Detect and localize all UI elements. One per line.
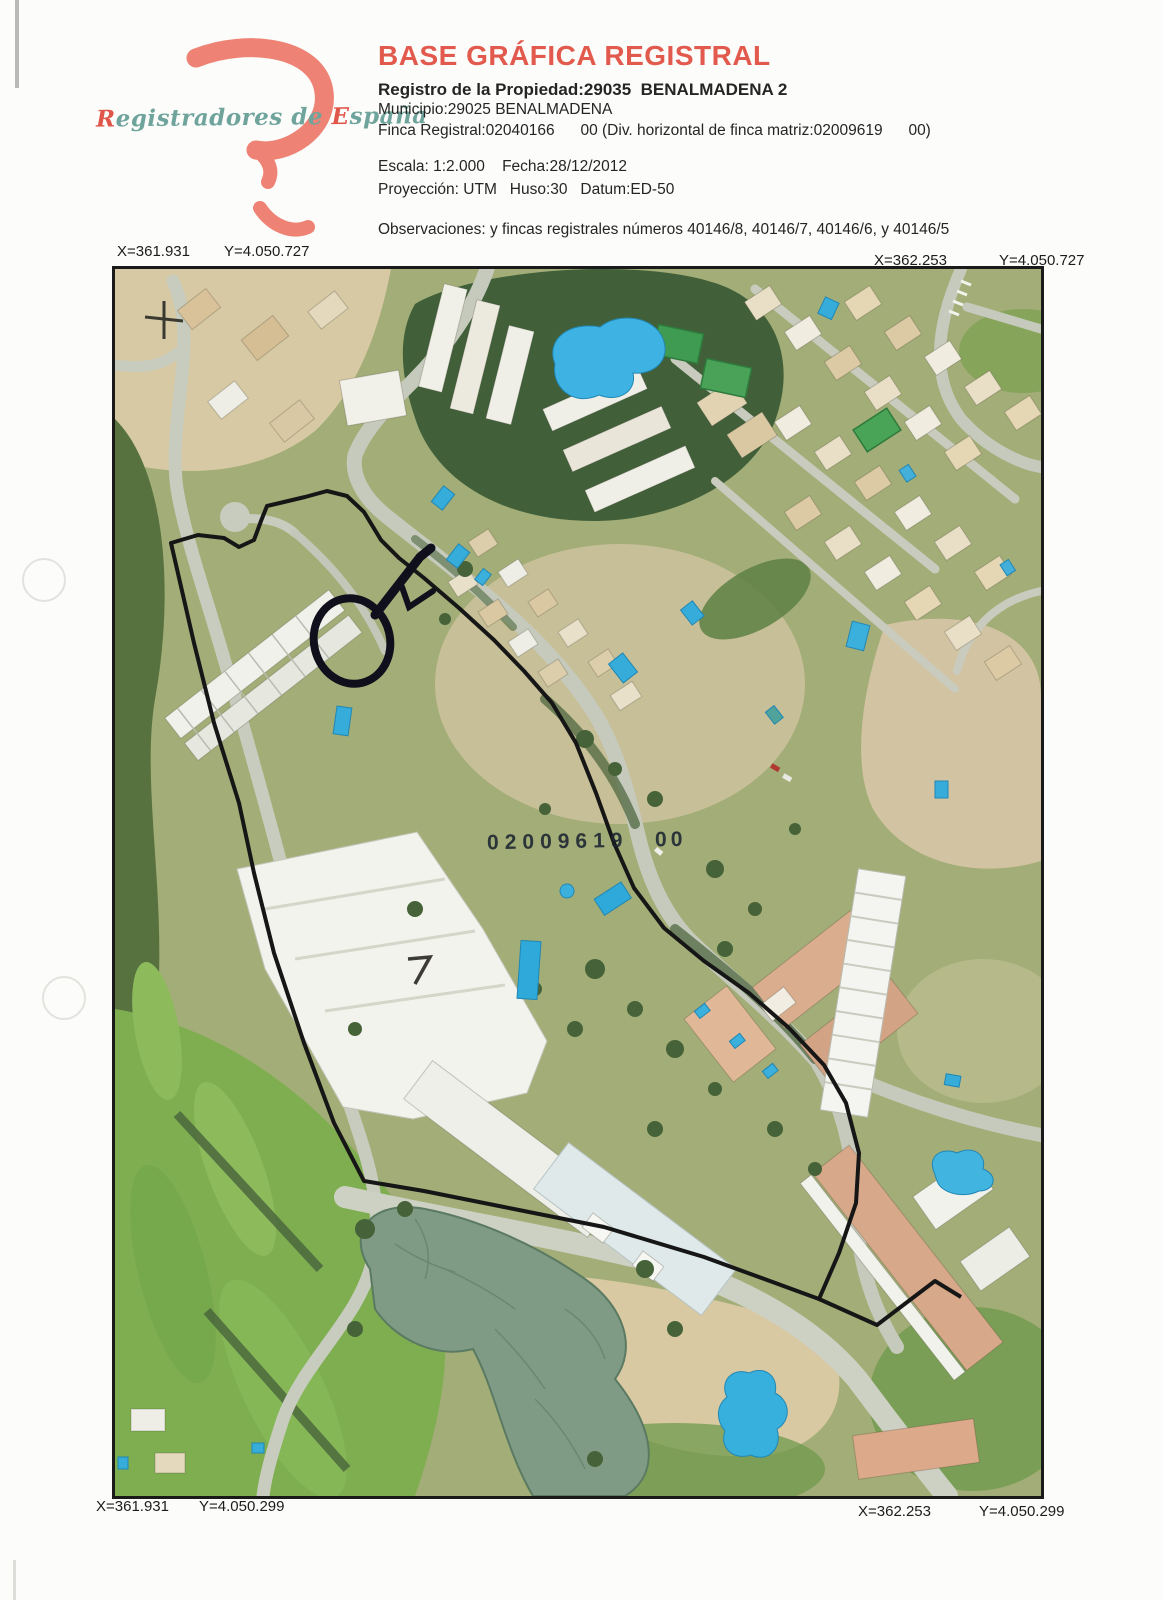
- hole-punch-mark: [42, 976, 86, 1020]
- scan-edge-shadow-bottom: [13, 1560, 16, 1600]
- proyeccion-line: Proyección: UTM Huso:30 Datum:ED-50: [378, 181, 674, 199]
- coord-y: Y=4.050.299: [979, 1503, 1065, 1520]
- parcel-label-suffix: 00: [655, 828, 687, 852]
- coord-top-left: X=361.931Y=4.050.727: [117, 243, 310, 260]
- coord-x: X=361.931: [117, 243, 190, 260]
- scanned-registry-document: Registradores de España BASE GRÁFICA REG…: [0, 0, 1163, 1600]
- municipio-line: Municipio:29025 BENALMADENA: [378, 101, 612, 119]
- registro-line: Registro de la Propiedad:29035 BENALMADE…: [378, 80, 787, 100]
- coord-y: Y=4.050.727: [224, 243, 310, 260]
- finca-line: Finca Registral:02040166 00 (Div. horizo…: [378, 122, 931, 140]
- aerial-map-svg: 02009619 00: [115, 269, 1041, 1496]
- escala-fecha-line: Escala: 1:2.000 Fecha:28/12/2012: [378, 158, 627, 176]
- coord-y: Y=4.050.299: [199, 1498, 285, 1515]
- parcel-label-group: 02009619 00: [487, 828, 687, 854]
- coord-x: X=361.931: [96, 1498, 169, 1515]
- parcel-label: 02009619: [487, 829, 629, 854]
- logo-caption-part: R: [96, 105, 116, 132]
- aerial-map-image: 02009619 00: [112, 266, 1044, 1499]
- logo-caption: Registradores de España: [96, 102, 396, 132]
- logo-caption-part: E: [331, 103, 349, 130]
- coord-bottom-right: X=362.253Y=4.050.299: [858, 1503, 1065, 1520]
- hole-punch-mark: [22, 558, 66, 602]
- registradores-logo-icon: [168, 30, 358, 245]
- logo-caption-part: egistradores de: [115, 103, 331, 132]
- coord-bottom-left: X=361.931Y=4.050.299: [96, 1498, 285, 1515]
- observaciones-line: Observaciones: y fincas registrales núme…: [378, 221, 949, 239]
- document-title: BASE GRÁFICA REGISTRAL: [378, 40, 771, 72]
- coord-x: X=362.253: [858, 1503, 931, 1520]
- scan-edge-shadow: [15, 0, 19, 88]
